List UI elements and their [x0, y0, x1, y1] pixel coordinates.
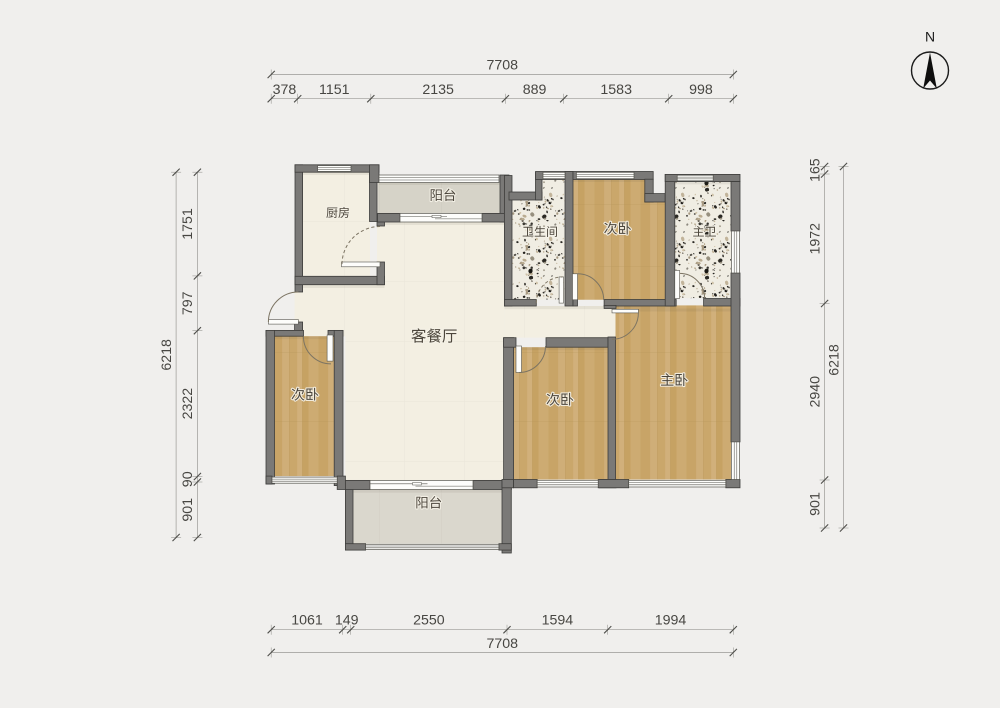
svg-text:1994: 1994	[655, 613, 687, 629]
svg-text:1594: 1594	[542, 613, 574, 629]
svg-text:1151: 1151	[319, 82, 350, 98]
svg-text:1061: 1061	[291, 613, 323, 629]
svg-text:378: 378	[273, 82, 297, 98]
svg-text:889: 889	[523, 82, 547, 98]
svg-text:90: 90	[180, 471, 196, 487]
svg-text:901: 901	[180, 498, 196, 522]
svg-text:165: 165	[807, 158, 823, 182]
svg-text:901: 901	[807, 492, 823, 516]
svg-text:1751: 1751	[180, 208, 196, 240]
svg-text:149: 149	[335, 613, 359, 629]
svg-text:7708: 7708	[487, 636, 519, 652]
svg-text:2940: 2940	[807, 376, 823, 408]
svg-text:2550: 2550	[413, 613, 445, 629]
svg-text:N: N	[925, 29, 935, 45]
svg-text:1583: 1583	[600, 82, 632, 98]
svg-text:797: 797	[180, 291, 196, 315]
svg-text:7708: 7708	[487, 58, 519, 74]
svg-text:1972: 1972	[807, 223, 823, 255]
svg-text:2322: 2322	[180, 388, 196, 420]
svg-text:6218: 6218	[159, 339, 175, 371]
svg-text:998: 998	[689, 82, 713, 98]
svg-text:6218: 6218	[826, 344, 842, 376]
svg-text:2135: 2135	[422, 82, 454, 98]
